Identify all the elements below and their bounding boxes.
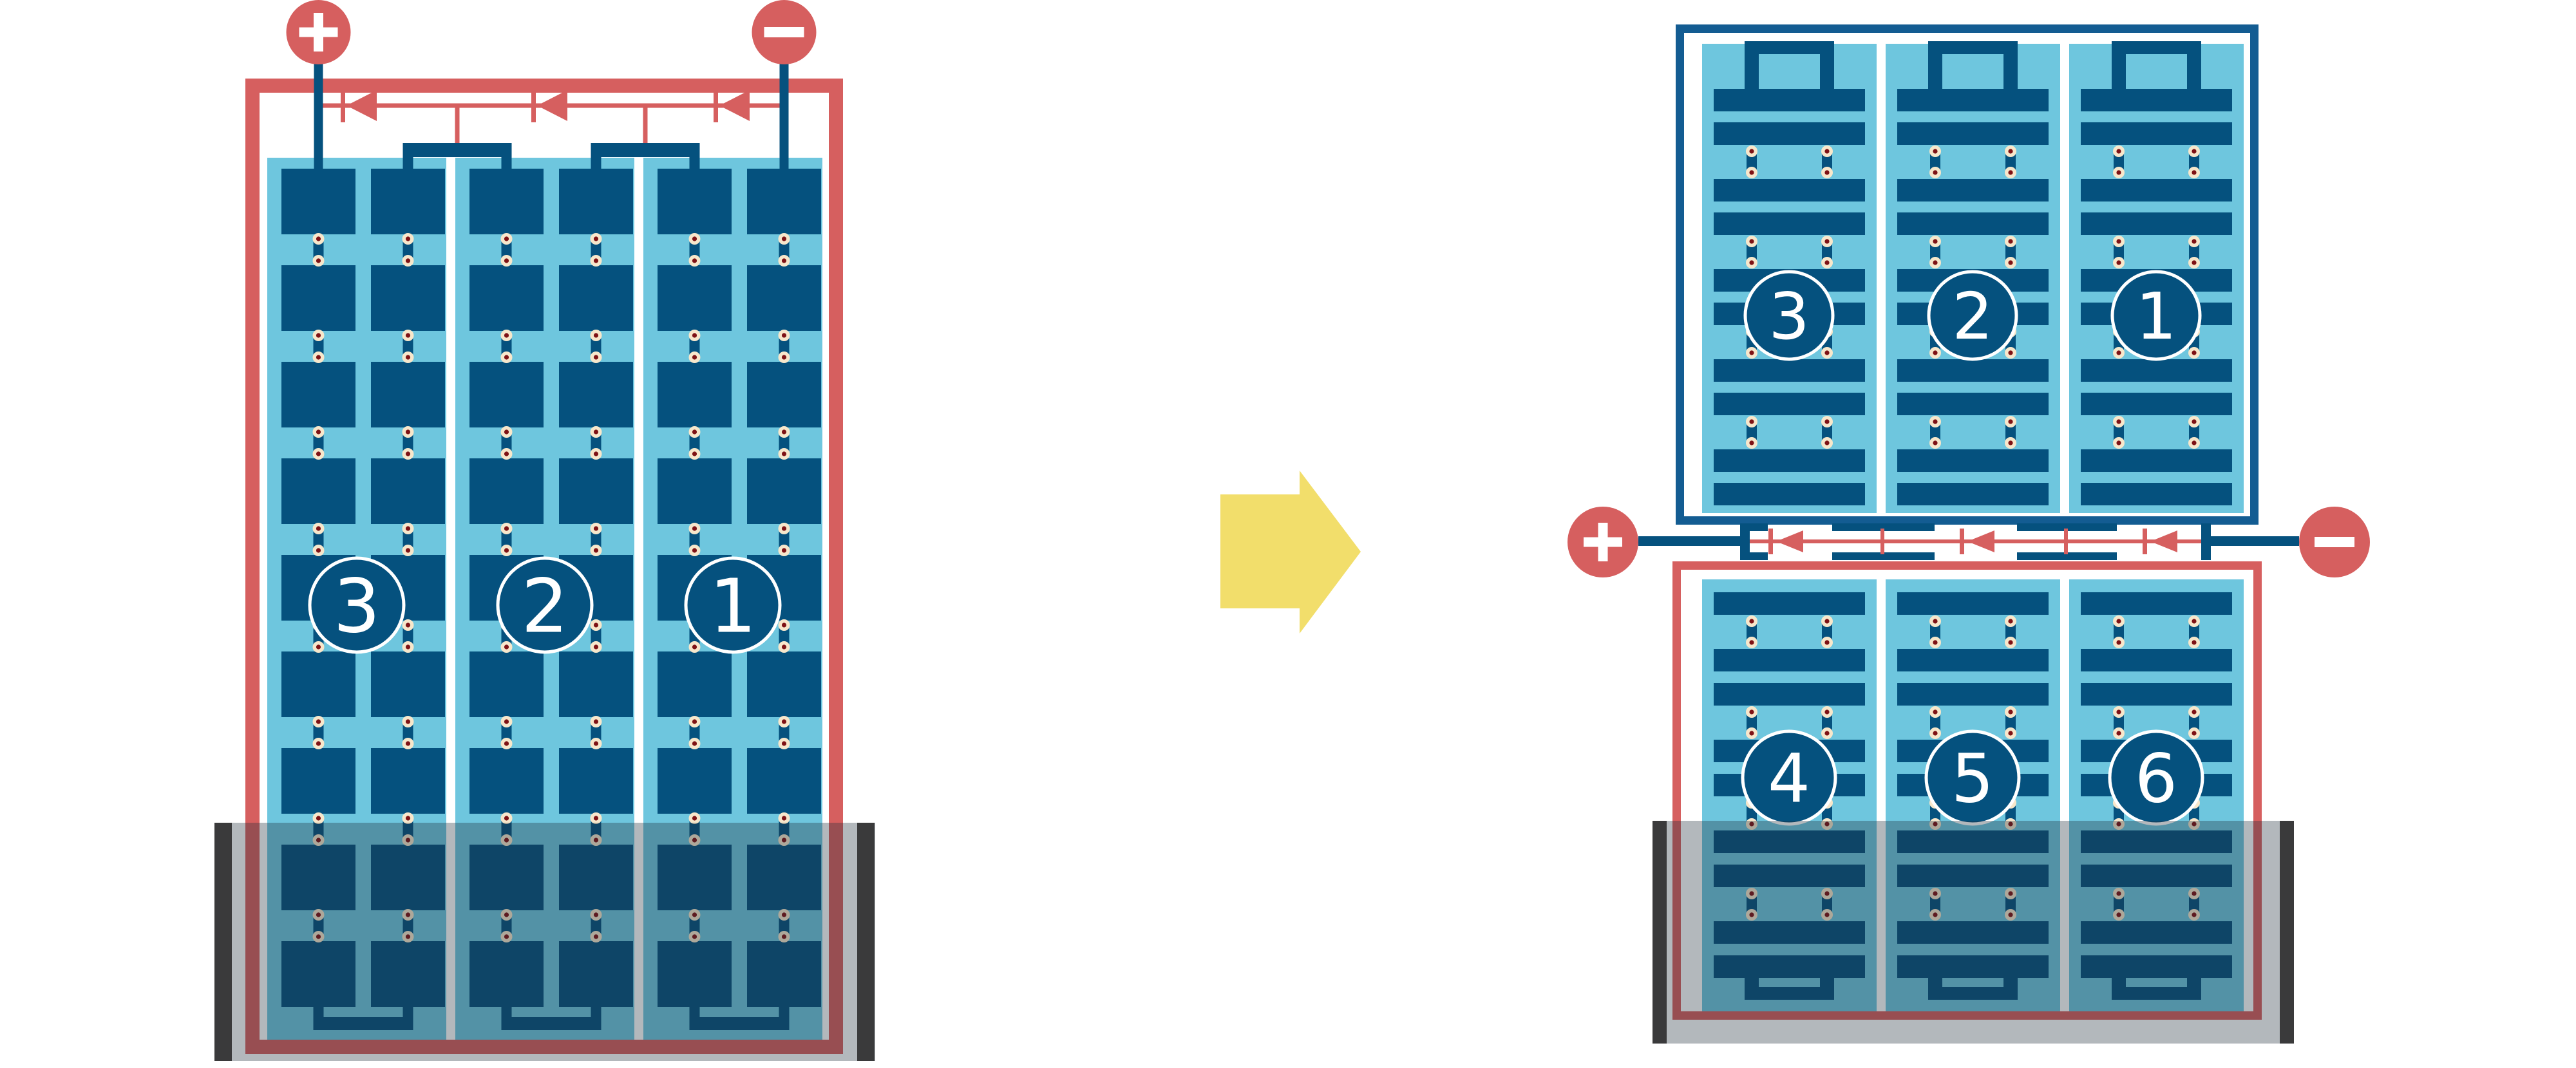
solder-joint-core [1749, 260, 1754, 265]
half-cell [2081, 649, 2157, 671]
solder-joint-core [1749, 170, 1754, 174]
solar-cell [371, 169, 445, 234]
plus-terminal [287, 0, 351, 64]
diode-tap-stub [643, 106, 648, 143]
half-cell [1897, 212, 1973, 235]
half-cell [2156, 179, 2232, 201]
string-number: 3 [1768, 279, 1810, 354]
half-cell [2081, 212, 2157, 235]
solder-joint-core [2008, 149, 2012, 153]
solder-joint-core [1933, 640, 1937, 644]
junction-post [1740, 523, 1750, 560]
solder-joint-core [1824, 619, 1829, 623]
solder-joint-core [782, 719, 786, 724]
solar-cell [469, 651, 544, 717]
minus-terminal [2299, 507, 2370, 577]
solder-joint-core [2116, 350, 2121, 355]
bridge-leg [1820, 54, 1834, 89]
bridge-bar [1745, 41, 1834, 54]
half-cell [2081, 483, 2157, 505]
solder-joint-core [1749, 640, 1754, 644]
solder-joint-core [316, 258, 321, 263]
solder-joint-core [1933, 419, 1937, 424]
solder-joint-core [2116, 731, 2121, 735]
solder-joint-core [504, 451, 509, 456]
solder-joint-core [2192, 149, 2196, 153]
half-cell [1714, 393, 1790, 415]
solder-joint-core [1824, 709, 1829, 714]
half-cell [1789, 483, 1865, 505]
solder-joint-core [2192, 239, 2196, 243]
solar-cell [281, 651, 355, 717]
plus-terminal [1567, 507, 1638, 577]
solder-joint-core [692, 429, 697, 434]
solder-joint-core [2192, 419, 2196, 424]
solar-cell [658, 458, 732, 524]
solder-joint-core [504, 719, 509, 724]
solder-joint-core [406, 333, 410, 337]
half-cell [2081, 89, 2157, 111]
minus-terminal [752, 0, 817, 64]
solder-joint-core [2008, 170, 2012, 174]
diode-arrow [2150, 530, 2177, 552]
minus-icon [764, 27, 804, 37]
solder-joint-core [2192, 350, 2196, 355]
solder-joint-core [594, 719, 598, 724]
string-number-badge: 6 [2110, 731, 2202, 824]
solder-joint-core [782, 355, 786, 359]
negative-stem [780, 62, 789, 193]
solder-joint-core [316, 644, 321, 649]
half-cell [1897, 483, 1973, 505]
half-cell [1897, 359, 1973, 382]
shade-overlay [214, 823, 875, 1061]
diode-cathode-bar [714, 89, 718, 122]
solder-joint-core [2116, 640, 2121, 644]
solder-joint-core [504, 333, 509, 337]
solder-joint-core [594, 644, 598, 649]
half-cell [1789, 592, 1865, 615]
string-number: 1 [709, 563, 756, 650]
solar-cell [371, 651, 445, 717]
solder-joint-core [2008, 350, 2012, 355]
string-number: 3 [333, 563, 380, 650]
solder-joint-core [406, 355, 410, 359]
solder-joint-core [1824, 731, 1829, 735]
bridge-bar [2112, 41, 2201, 54]
bridge-leg [1928, 54, 1942, 89]
solar-cell [658, 169, 732, 234]
solder-joint-core [316, 333, 321, 337]
half-cell [2156, 449, 2232, 472]
half-cell [1789, 359, 1865, 382]
solder-joint-core [1933, 709, 1937, 714]
half-cell [2156, 89, 2232, 111]
positive-stem [1638, 536, 1740, 546]
solder-joint-core [782, 816, 786, 820]
solder-joint-core [1749, 731, 1754, 735]
solder-joint-core [594, 355, 598, 359]
solder-joint-core [316, 548, 321, 552]
solder-joint-core [316, 816, 321, 820]
half-cell [1714, 649, 1790, 671]
solder-joint-core [782, 429, 786, 434]
solar-cell [658, 651, 732, 717]
solder-joint-core [1749, 709, 1754, 714]
string-number: 4 [1768, 739, 1810, 818]
solder-joint-core [1749, 419, 1754, 424]
half-cell [1714, 449, 1790, 472]
solder-joint-core [594, 429, 598, 434]
solder-joint-core [692, 526, 697, 530]
half-cell [1714, 89, 1790, 111]
bridge-leg [2003, 54, 2018, 89]
string-number: 2 [1952, 279, 1993, 354]
half-cell [1714, 592, 1790, 615]
solder-joint-core [2192, 260, 2196, 265]
diode-arrow [346, 90, 377, 121]
solder-joint-core [1749, 239, 1754, 243]
half-cell [1973, 649, 2049, 671]
diode-tap-stub [2064, 529, 2068, 554]
half-cell [1897, 89, 1973, 111]
right-module-top-half: 321 [1680, 29, 2255, 521]
solar-cell [469, 748, 544, 814]
solder-joint-core [2192, 170, 2196, 174]
string-number-badge: 1 [2112, 272, 2200, 359]
solder-joint-core [2116, 239, 2121, 243]
solder-joint-core [1933, 440, 1937, 445]
half-cell [1714, 179, 1790, 201]
solder-joint-core [1824, 350, 1829, 355]
solder-joint-core [1933, 170, 1937, 174]
half-cell [1789, 393, 1865, 415]
solar-cell [559, 651, 633, 717]
solar-cell [658, 362, 732, 427]
half-cell [2081, 683, 2157, 706]
solder-joint-core [1933, 619, 1937, 623]
solder-joint-core [782, 548, 786, 552]
solder-joint-core [406, 526, 410, 530]
solder-joint-core [594, 236, 598, 241]
half-cell [1897, 683, 1973, 706]
solder-joint-core [2008, 440, 2012, 445]
half-cell [1789, 122, 1865, 145]
solder-joint-core [2008, 619, 2012, 623]
diode-cathode-bar [531, 89, 536, 122]
half-cell [1789, 683, 1865, 706]
solder-joint-core [504, 258, 509, 263]
solder-joint-core [504, 548, 509, 552]
diode-arrow [1776, 530, 1803, 552]
solder-joint-core [2008, 260, 2012, 265]
solder-joint-core [692, 548, 697, 552]
solder-joint-core [504, 644, 509, 649]
solder-joint-core [2116, 260, 2121, 265]
solar-cell [747, 265, 821, 331]
solder-joint-core [782, 623, 786, 627]
left-module: 321 [214, 0, 875, 1061]
plus-v [314, 13, 323, 52]
solder-joint-core [2192, 731, 2196, 735]
solder-joint-core [406, 429, 410, 434]
diode-tap-stub [1880, 529, 1884, 554]
half-cell [2081, 592, 2157, 615]
solder-joint-core [2192, 640, 2196, 644]
solar-cell [559, 265, 633, 331]
solder-joint-core [594, 548, 598, 552]
left-bypass-diode-line [319, 89, 784, 143]
solder-joint-core [1933, 239, 1937, 243]
solar-cell [371, 748, 445, 814]
solar-cell [747, 458, 821, 524]
solder-joint-core [594, 623, 598, 627]
string-number-badge: 3 [310, 558, 404, 652]
junction-tab [1750, 523, 1768, 531]
plus-v [1598, 523, 1608, 561]
bridge-bar [403, 143, 512, 157]
solder-joint-core [1824, 239, 1829, 243]
half-cell [1973, 89, 2049, 111]
solder-joint-core [692, 236, 697, 241]
solder-joint-core [782, 741, 786, 745]
solder-joint-core [782, 526, 786, 530]
half-cell [2156, 393, 2232, 415]
half-cell [2156, 683, 2232, 706]
solder-joint-core [782, 258, 786, 263]
half-cell [1789, 179, 1865, 201]
solder-joint-core [594, 741, 598, 745]
half-cell [1714, 683, 1790, 706]
solder-joint-core [692, 258, 697, 263]
solder-joint-core [782, 644, 786, 649]
right-module-bottom-half: 456 [1653, 566, 2294, 1044]
positive-stem [314, 62, 323, 193]
junction-tab [1750, 552, 1768, 560]
solder-joint-core [504, 526, 509, 530]
half-cell [2156, 483, 2232, 505]
solder-joint-core [504, 429, 509, 434]
solder-joint-core [1749, 440, 1754, 445]
solar-cell [469, 458, 544, 524]
string-number-badge: 2 [1929, 272, 2016, 359]
half-cell [1973, 212, 2049, 235]
solar-cell [281, 265, 355, 331]
solder-joint-core [2008, 731, 2012, 735]
solar-cell [658, 748, 732, 814]
solder-joint-core [1749, 350, 1754, 355]
solder-joint-core [1933, 731, 1937, 735]
solar-cell [469, 265, 544, 331]
diode-arrow [1967, 530, 1994, 552]
half-cell [1973, 122, 2049, 145]
solder-joint-core [406, 644, 410, 649]
solder-joint-core [692, 741, 697, 745]
solar-cell [371, 458, 445, 524]
solder-joint-core [1824, 260, 1829, 265]
half-cell [1897, 393, 1973, 415]
half-cell [1714, 122, 1790, 145]
shade-overlay [1653, 821, 2294, 1044]
solar-cell [281, 362, 355, 427]
solder-joint-core [2116, 619, 2121, 623]
left-shade-group [214, 823, 875, 1061]
solder-joint-core [1824, 170, 1829, 174]
solder-joint-core [406, 719, 410, 724]
solder-joint-core [594, 258, 598, 263]
solar-cell [281, 458, 355, 524]
solder-joint-core [2116, 440, 2121, 445]
solder-joint-core [406, 258, 410, 263]
figure-canvas: 321321456 [0, 0, 2576, 1068]
half-cell [1897, 179, 1973, 201]
solder-joint-core [406, 741, 410, 745]
solar-cell [747, 748, 821, 814]
solder-joint-core [1749, 149, 1754, 153]
diode-tap-stub [455, 106, 460, 143]
solder-joint-core [594, 526, 598, 530]
solder-joint-core [1824, 640, 1829, 644]
half-cell [2156, 649, 2232, 671]
solder-joint-core [1749, 619, 1754, 623]
bridge-bar [1928, 41, 2018, 54]
solar-cell [281, 748, 355, 814]
half-cell [2156, 122, 2232, 145]
solder-joint-core [1824, 419, 1829, 424]
solder-joint-core [692, 719, 697, 724]
minus-h [2315, 537, 2354, 547]
diode-cathode-bar [2143, 529, 2147, 554]
solder-joint-core [504, 741, 509, 745]
solder-joint-core [692, 333, 697, 337]
half-cell [1714, 483, 1790, 505]
solder-joint-core [594, 816, 598, 820]
solder-joint-core [2192, 619, 2196, 623]
solder-joint-core [1933, 350, 1937, 355]
half-cell [1973, 449, 2049, 472]
half-cell [2081, 449, 2157, 472]
string-number: 1 [2136, 279, 2177, 354]
solar-module-shading-diagram: 321321456 [0, 0, 2576, 1068]
solar-cell [559, 458, 633, 524]
half-cell [2156, 592, 2232, 615]
half-cell [1973, 393, 2049, 415]
solder-joint-core [782, 236, 786, 241]
half-cell [1789, 212, 1865, 235]
solder-joint-core [406, 451, 410, 456]
solder-joint-core [1933, 149, 1937, 153]
right-shade-group [1653, 821, 2294, 1044]
solar-cell [469, 169, 544, 234]
half-cell [1714, 359, 1790, 382]
half-cell [2156, 359, 2232, 382]
solar-cell [469, 362, 544, 427]
transform-arrow [1220, 471, 1361, 633]
half-cell [1714, 212, 1790, 235]
bridge-leg [2112, 54, 2126, 89]
half-cell [1897, 449, 1973, 472]
solder-joint-core [406, 623, 410, 627]
string-number-badge: 4 [1743, 731, 1835, 824]
string-number-badge: 2 [498, 558, 592, 652]
solder-joint-core [316, 719, 321, 724]
solar-cell [559, 748, 633, 814]
half-cell [1789, 649, 1865, 671]
diode-cathode-bar [1768, 529, 1773, 554]
half-cell [1973, 683, 2049, 706]
solder-joint-core [316, 236, 321, 241]
string-number: 2 [521, 563, 568, 650]
solar-cell [747, 651, 821, 717]
solder-joint-core [2116, 709, 2121, 714]
negative-stem [2211, 536, 2299, 546]
half-cell [2081, 359, 2157, 382]
solder-joint-core [2192, 440, 2196, 445]
solder-joint-core [2008, 640, 2012, 644]
solder-joint-core [692, 644, 697, 649]
solar-cell [747, 362, 821, 427]
string-number: 6 [2135, 739, 2177, 818]
solar-cell [371, 265, 445, 331]
solder-joint-core [2116, 419, 2121, 424]
half-cell [1973, 179, 2049, 201]
solder-joint-core [2116, 149, 2121, 153]
diode-cathode-bar [1960, 529, 1964, 554]
solder-joint-core [692, 816, 697, 820]
half-cell [1897, 592, 1973, 615]
minus-icon [2315, 537, 2354, 547]
solder-joint-core [406, 236, 410, 241]
solder-joint-core [504, 236, 509, 241]
solar-cell [658, 265, 732, 331]
diode-arrow [537, 90, 567, 121]
solder-joint-core [1933, 260, 1937, 265]
solder-joint-core [406, 548, 410, 552]
shade-edge-bar [214, 823, 232, 1061]
half-cell [1973, 359, 2049, 382]
solder-joint-core [782, 451, 786, 456]
half-cell [1897, 122, 1973, 145]
half-cell [2081, 393, 2157, 415]
half-cell [1897, 649, 1973, 671]
string-number-badge: 3 [1745, 272, 1833, 359]
junction-post [2201, 523, 2211, 560]
minus-h [764, 27, 804, 37]
solder-joint-core [406, 816, 410, 820]
bridge-bar [591, 143, 700, 157]
solder-joint-core [1824, 149, 1829, 153]
solder-joint-core [1824, 440, 1829, 445]
shade-edge-bar [1653, 821, 1667, 1044]
diode-cathode-bar [341, 89, 345, 122]
solder-joint-core [2008, 239, 2012, 243]
shade-edge-bar [2280, 821, 2294, 1044]
half-cell [1973, 592, 2049, 615]
diode-arrow [719, 90, 750, 121]
solar-cell [559, 362, 633, 427]
solder-joint-core [692, 355, 697, 359]
solar-cell [559, 169, 633, 234]
half-cell [1789, 89, 1865, 111]
bridge-leg [2187, 54, 2201, 89]
solder-joint-core [594, 451, 598, 456]
half-cell [1973, 483, 2049, 505]
solder-joint-core [316, 355, 321, 359]
shade-edge-bar [857, 823, 875, 1061]
solder-joint-core [2008, 709, 2012, 714]
half-cell [2156, 212, 2232, 235]
half-cell [2081, 122, 2157, 145]
